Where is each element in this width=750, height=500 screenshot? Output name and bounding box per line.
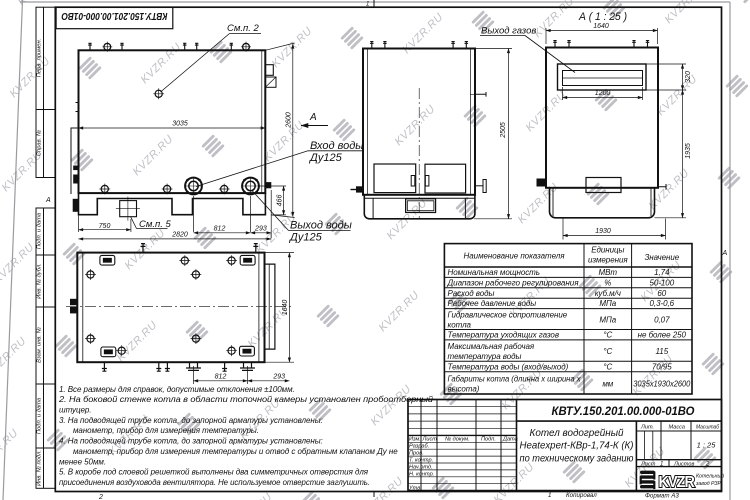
svg-text:Максимальная рабочая: Максимальная рабочая <box>448 342 535 351</box>
svg-text:2505: 2505 <box>500 122 507 139</box>
svg-text:Масса: Масса <box>669 425 686 431</box>
svg-text:1930: 1930 <box>595 228 611 235</box>
svg-text:KVZR.RU: KVZR.RU <box>532 0 577 40</box>
svg-text:KVZR.RU: KVZR.RU <box>631 353 676 398</box>
svg-text:Температура уходящих газов: Температура уходящих газов <box>448 331 559 340</box>
svg-text:°С: °С <box>603 331 612 340</box>
svg-text:КВТУ.150.201.00.000-01ВО: КВТУ.150.201.00.000-01ВО <box>552 406 695 418</box>
svg-text:%: % <box>604 278 611 287</box>
svg-text:Изм.: Изм. <box>409 437 421 443</box>
svg-text:Справ. №: Справ. № <box>37 130 43 156</box>
svg-text:манометр, прибор для измерения: манометр, прибор для измерения температу… <box>73 426 259 435</box>
svg-text:1200: 1200 <box>595 90 611 97</box>
svg-text:штуцер.: штуцер. <box>59 406 91 415</box>
svg-text:МПа: МПа <box>599 316 616 325</box>
svg-text:1640: 1640 <box>593 23 609 30</box>
svg-text:Разраб.: Разраб. <box>409 444 429 450</box>
svg-text:KVZR.RU: KVZR.RU <box>655 73 700 118</box>
svg-text:KVZR.RU: KVZR.RU <box>230 491 275 500</box>
svg-text:KVZR.RU: KVZR.RU <box>123 227 168 272</box>
svg-text:См.п. 2: См.п. 2 <box>227 23 260 34</box>
svg-text:KVZR.RU: KVZR.RU <box>377 289 422 334</box>
svg-text:КВТУ.150.201.00.000-01ВО: КВТУ.150.201.00.000-01ВО <box>62 10 168 22</box>
svg-text:Гидравлическое сопротивление: Гидравлическое сопротивление <box>448 311 568 320</box>
svg-text:2: 2 <box>705 461 710 467</box>
svg-text:812: 812 <box>214 226 226 233</box>
svg-text:Инв. № дубл.: Инв. № дубл. <box>37 263 43 299</box>
svg-text:Вход воды: Вход воды <box>310 140 363 152</box>
svg-text:Лист: Лист <box>640 461 656 467</box>
svg-text:50-100: 50-100 <box>649 278 674 287</box>
svg-text:Лист: Лист <box>422 437 438 443</box>
svg-text:KVZR.RU: KVZR.RU <box>0 241 37 286</box>
svg-text:60: 60 <box>657 289 666 298</box>
svg-text:5. В коробе под слоевой решетк: 5. В коробе под слоевой решеткой выполне… <box>59 468 369 477</box>
svg-text:1: 1 <box>366 2 369 8</box>
svg-text:°С: °С <box>603 362 612 371</box>
svg-text:А ( 1 : 25 ): А ( 1 : 25 ) <box>578 11 627 23</box>
svg-text:KVZR.RU: KVZR.RU <box>115 319 160 364</box>
svg-text:2. На боковой стенке котла в о: 2. На боковой стенке котла в области топ… <box>58 395 434 404</box>
svg-text:Пров.: Пров. <box>409 451 424 457</box>
svg-text:Перв. примен.: Перв. примен. <box>37 39 43 78</box>
svg-text:Значение: Значение <box>644 253 679 262</box>
svg-text:присоединения воздуховода вент: присоединения воздуховода вентилятора. Н… <box>59 478 370 487</box>
svg-text:См.п. 5: См.п. 5 <box>139 219 172 230</box>
svg-text:Котельный: Котельный <box>696 473 724 480</box>
svg-text:Листов: Листов <box>673 461 694 467</box>
svg-text:Масштаб: Масштаб <box>696 425 720 431</box>
svg-text:70/95: 70/95 <box>652 362 672 371</box>
svg-text:Единицы: Единицы <box>591 246 624 255</box>
svg-text:115: 115 <box>655 347 668 356</box>
svg-text:Копировал: Копировал <box>566 492 597 499</box>
svg-text:мм: мм <box>602 380 613 389</box>
svg-text:Ду125: Ду125 <box>308 152 343 164</box>
svg-text:Расход воды: Расход воды <box>448 289 495 298</box>
svg-text:KVZR: KVZR <box>659 474 695 491</box>
svg-text:466: 466 <box>276 195 283 207</box>
svg-text:Формат А3: Формат А3 <box>645 493 679 500</box>
svg-text:KVZR.RU: KVZR.RU <box>393 103 438 148</box>
svg-text:высота): высота) <box>448 385 480 394</box>
svg-text:1640: 1640 <box>282 300 289 316</box>
svg-text:1 : 25: 1 : 25 <box>697 441 717 450</box>
svg-text:Дата: Дата <box>502 437 518 443</box>
svg-text:2: 2 <box>98 494 103 500</box>
svg-text:Ду125: Ду125 <box>288 232 323 244</box>
svg-text:Подп.: Подп. <box>481 437 496 443</box>
svg-text:№ докум.: № докум. <box>445 437 470 443</box>
svg-text:Нач.отд.: Нач.отд. <box>409 464 433 470</box>
svg-text:0,3-0,6: 0,3-0,6 <box>650 299 675 308</box>
svg-text:по техническому заданию: по техническому заданию <box>520 454 635 465</box>
svg-text:KVZR.RU: KVZR.RU <box>139 41 184 86</box>
svg-text:А: А <box>722 250 728 257</box>
svg-text:KVZR.RU: KVZR.RU <box>131 133 176 178</box>
svg-text:1: 1 <box>548 492 551 499</box>
svg-text:1935: 1935 <box>685 143 692 159</box>
svg-text:манометр, прибор для измерения: манометр, прибор для измерения температу… <box>73 447 398 456</box>
svg-text:KVZR.RU: KVZR.RU <box>0 427 21 472</box>
svg-text:1,74: 1,74 <box>654 268 670 277</box>
svg-text:Н. контр.: Н. контр. <box>409 471 434 477</box>
svg-text:3. На подводящей трубе котла,: 3. На подводящей трубе котла, до запорно… <box>59 416 323 425</box>
svg-text:температура воды: температура воды <box>448 352 522 361</box>
svg-text:320: 320 <box>685 71 692 83</box>
svg-text:KVZR.RU: KVZR.RU <box>0 335 29 380</box>
svg-text:293: 293 <box>254 226 267 233</box>
svg-text:293: 293 <box>272 374 285 381</box>
svg-text:0,07: 0,07 <box>654 316 670 325</box>
svg-text:2820: 2820 <box>171 232 188 239</box>
svg-text:Наименование показателя: Наименование показателя <box>464 252 566 261</box>
svg-text:Выход газов: Выход газов <box>481 26 536 37</box>
svg-text:Котел водогрейный: Котел водогрейный <box>530 428 625 439</box>
svg-text:2600: 2600 <box>285 112 292 129</box>
svg-text:Лит.: Лит. <box>640 425 654 431</box>
svg-text:KVZR.RU: KVZR.RU <box>663 0 708 26</box>
svg-text:измерения: измерения <box>588 256 628 265</box>
svg-text:1. Все размеры для справок, до: 1. Все размеры для справок, допустимые о… <box>59 385 295 394</box>
svg-text:Выход воды: Выход воды <box>290 220 352 232</box>
svg-text:Взам. инв. №: Взам. инв. № <box>37 327 43 363</box>
svg-text:3035х1930х2600: 3035х1930х2600 <box>633 380 691 389</box>
svg-text:KVZR.RU: KVZR.RU <box>8 55 53 100</box>
svg-text:Утв.: Утв. <box>408 485 422 491</box>
svg-text:Номинальная мощность: Номинальная мощность <box>448 268 540 277</box>
svg-text:А: А <box>309 112 317 123</box>
svg-text:4. На подводящей трубе котла,: 4. На подводящей трубе котла, до запорно… <box>59 437 323 446</box>
svg-text:Т. контр.: Т. контр. <box>409 458 433 464</box>
svg-text:KVZR.RU: KVZR.RU <box>262 119 307 164</box>
svg-text:Рабочее давление воды: Рабочее давление воды <box>448 299 537 308</box>
svg-text:завод РЗР: завод РЗР <box>695 481 722 487</box>
svg-text:Подп. и дата: Подп. и дата <box>37 212 43 249</box>
svg-text:Габариты котла (длинна х ширин: Габариты котла (длинна х ширина х <box>448 375 582 384</box>
svg-text:Температура воды (вход/выход): Температура воды (вход/выход) <box>448 362 569 371</box>
svg-text:Heatexpert-КВр-1,74-К (К): Heatexpert-КВр-1,74-К (К) <box>520 441 634 452</box>
svg-text:куб.м/ч: куб.м/ч <box>595 289 621 298</box>
svg-text:МВт: МВт <box>599 268 618 277</box>
svg-text:KVZR.RU: KVZR.RU <box>647 167 692 212</box>
svg-text:МПа: МПа <box>599 299 616 308</box>
svg-text:менее 50мм.: менее 50мм. <box>59 457 106 466</box>
svg-text:3035: 3035 <box>172 121 188 128</box>
svg-text:750: 750 <box>99 223 111 230</box>
svg-text:А: А <box>45 197 51 204</box>
svg-text:Инв. № подл.: Инв. № подл. <box>37 450 43 486</box>
svg-text:котла: котла <box>448 321 472 330</box>
svg-text:°С: °С <box>603 347 612 356</box>
svg-text:812: 812 <box>215 374 227 381</box>
svg-text:не более 250: не более 250 <box>638 331 687 340</box>
svg-text:1: 1 <box>660 461 663 467</box>
svg-text:Диапазон рабочего регулировани: Диапазон рабочего регулирования <box>446 278 579 287</box>
svg-text:KVZR.RU: KVZR.RU <box>492 461 537 500</box>
svg-text:KVZR.RU: KVZR.RU <box>369 383 414 428</box>
svg-text:Подп. и дата: Подп. и дата <box>37 397 43 434</box>
